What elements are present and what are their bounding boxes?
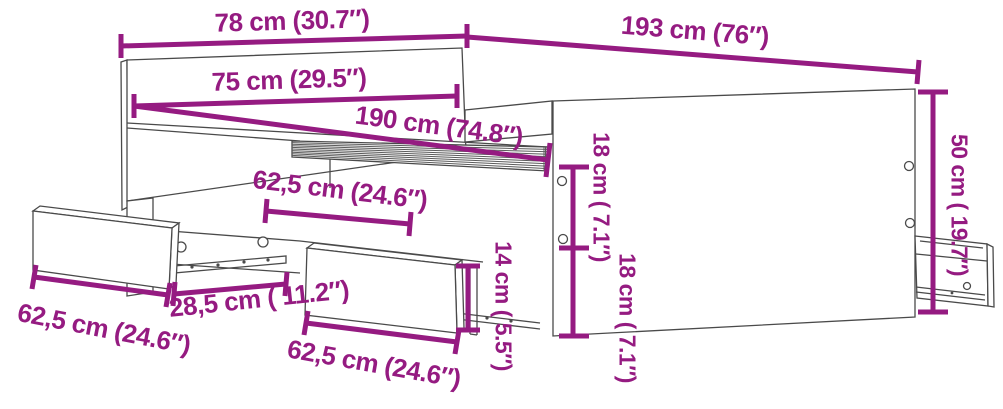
dim-mattress-width-label: 75 cm (29.5″)	[211, 62, 367, 98]
dim-drawer-front-height-label: 14 cm ( 5.5″)	[490, 241, 517, 371]
dim-upper-side-height-label: 18 cm ( 7.1″)	[588, 132, 615, 262]
dim-headboard-width-label: 78 cm (30.7″)	[214, 3, 370, 39]
bed-frame-dimension-diagram: 78 cm (30.7″) 193 cm (76″) 75 cm (29.5″)…	[0, 0, 1003, 409]
left-drawer	[33, 206, 179, 289]
dim-lower-side-height-label: 18 cm ( 7.1″)	[614, 253, 641, 383]
dim-total-height-label: 50 cm ( 19.7″)	[946, 134, 973, 276]
